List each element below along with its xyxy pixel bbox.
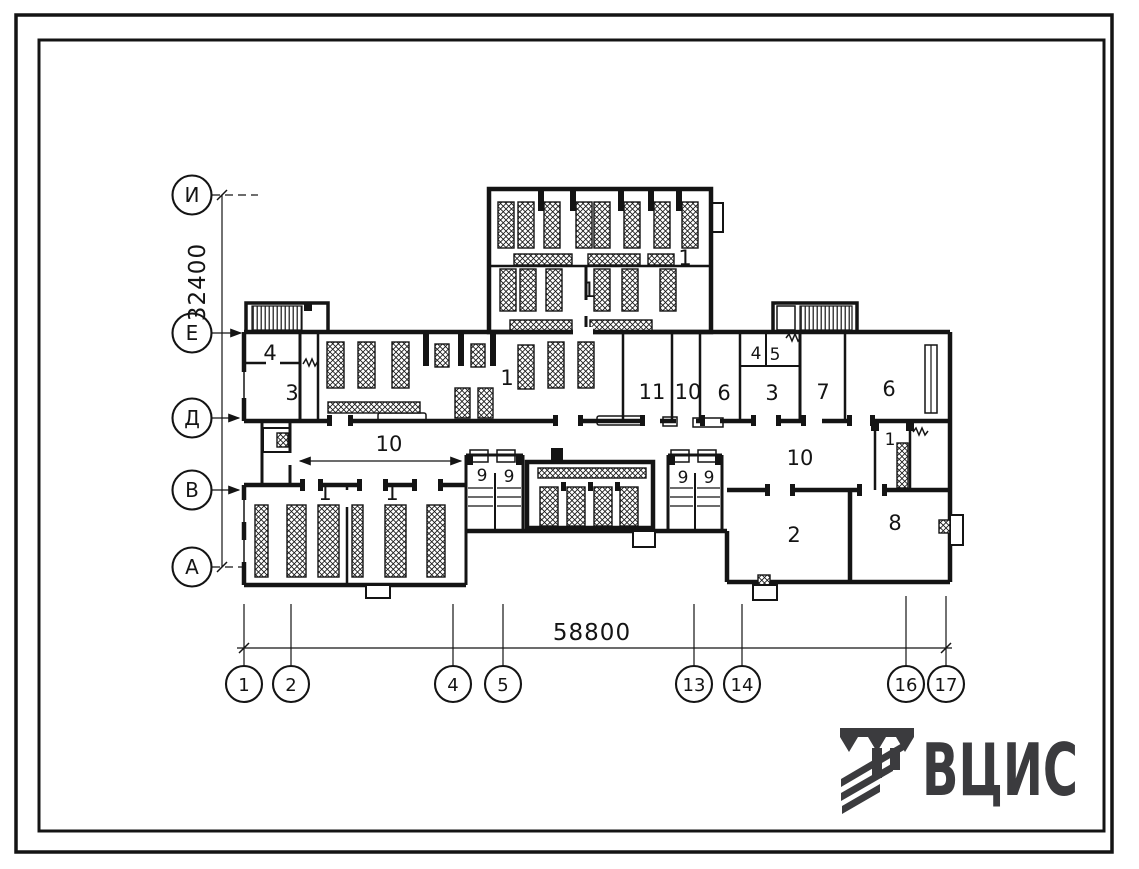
room-label: 6 [882,377,895,401]
room-label: 10 [376,432,403,456]
door-spring-icon [303,359,318,366]
room-label: 6 [717,381,730,405]
stairwell-right [668,450,722,531]
room-label: 1 [385,481,398,505]
row-axis-label: Д [184,406,200,430]
row-axis-label: И [185,183,200,207]
col-axis-label: 13 [683,675,706,696]
right-small-room [871,421,928,490]
dormitory-beds-main [327,332,594,418]
entrance-porch [753,585,777,600]
col-axis-label: 5 [497,675,508,696]
blueprint-canvas: И Е Д В А 32400 58800 1 2 4 5 13 14 [0,0,1139,869]
room-label: 9 [504,467,515,487]
room-label: 1 [500,366,513,390]
room-label: 3 [765,381,778,405]
stairwell-left [466,450,523,531]
entrance-porch [633,531,655,547]
room-label: 9 [477,466,488,486]
chimney-stub [551,448,563,462]
vcis-logo: ВЦИС [840,728,1078,814]
room-label: 8 [888,511,901,535]
bottom-left-wing [239,455,466,598]
vertical-dimension-value: 32400 [185,243,211,321]
room-label: 10 [675,380,702,404]
drawing-sheet: И Е Д В А 32400 58800 1 2 4 5 13 14 [0,0,1139,869]
chimney-hatch [939,520,950,533]
main-band-south-wall [300,413,950,427]
room-label: 5 [770,345,781,365]
col-axis-label: 16 [895,675,918,696]
room-label: 2 [787,523,800,547]
col-axis-label: 1 [238,675,249,696]
room-label: 1 [318,481,331,505]
floor-plan [239,189,963,600]
room-label: 1 [885,430,896,450]
room-label: 4 [751,344,762,364]
room-label: 7 [816,380,829,404]
row-axis-label: Е [186,321,199,345]
room-label: 9 [704,468,715,488]
entrance-porch [366,585,390,598]
chimney-hatch [277,433,288,447]
room-label: 4 [263,341,276,365]
room-label: 1 [678,246,691,270]
col-axis-label: 17 [935,675,958,696]
room-label: 3 [285,381,298,405]
vcis-logo-text: ВЦИС [922,728,1078,812]
stair-hatch [252,306,302,330]
row-axis-label: В [185,478,199,502]
side-porch [950,515,963,545]
horizontal-dimension-value: 58800 [553,620,631,646]
col-axis-label: 2 [285,675,296,696]
room-label: 11 [639,380,666,404]
col-axis: 58800 1 2 4 5 13 14 16 17 [226,596,964,702]
vcis-logo-emblem-icon [840,728,914,814]
col-axis-label: 4 [447,675,458,696]
stair-hatch [800,306,852,330]
right-bottom-block [727,484,963,600]
duct-hatch [897,443,908,488]
room-label: 10 [787,446,814,470]
col-axis-label: 14 [731,675,754,696]
room-label: 9 [678,468,689,488]
stairwell-top-left [246,303,328,332]
door-spring-icon [913,428,928,435]
row-axis-label: А [185,555,199,579]
room-label: 1 [582,278,595,302]
